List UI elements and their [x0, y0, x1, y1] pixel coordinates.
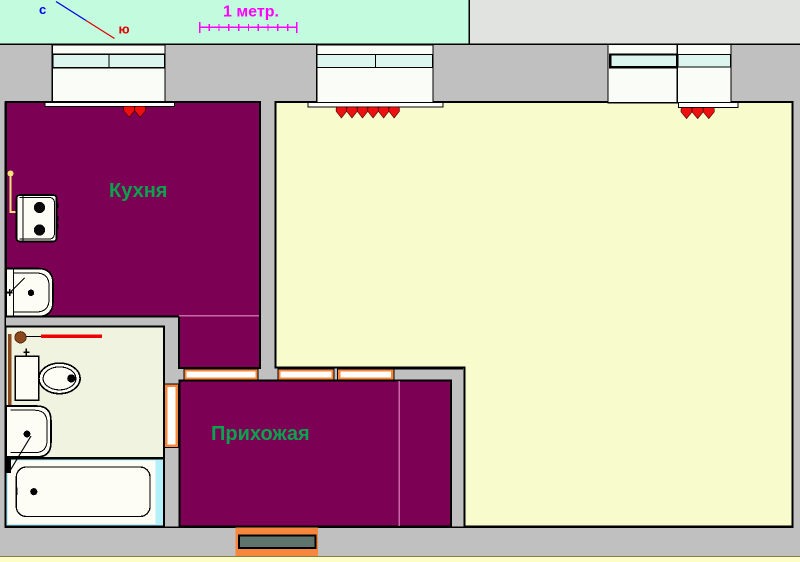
svg-text:Прихожая: Прихожая: [211, 423, 310, 445]
svg-text:с: с: [39, 2, 46, 17]
svg-text:ю: ю: [119, 22, 130, 37]
svg-text:1 метр.: 1 метр.: [223, 4, 279, 21]
svg-text:Кухня: Кухня: [109, 180, 167, 202]
